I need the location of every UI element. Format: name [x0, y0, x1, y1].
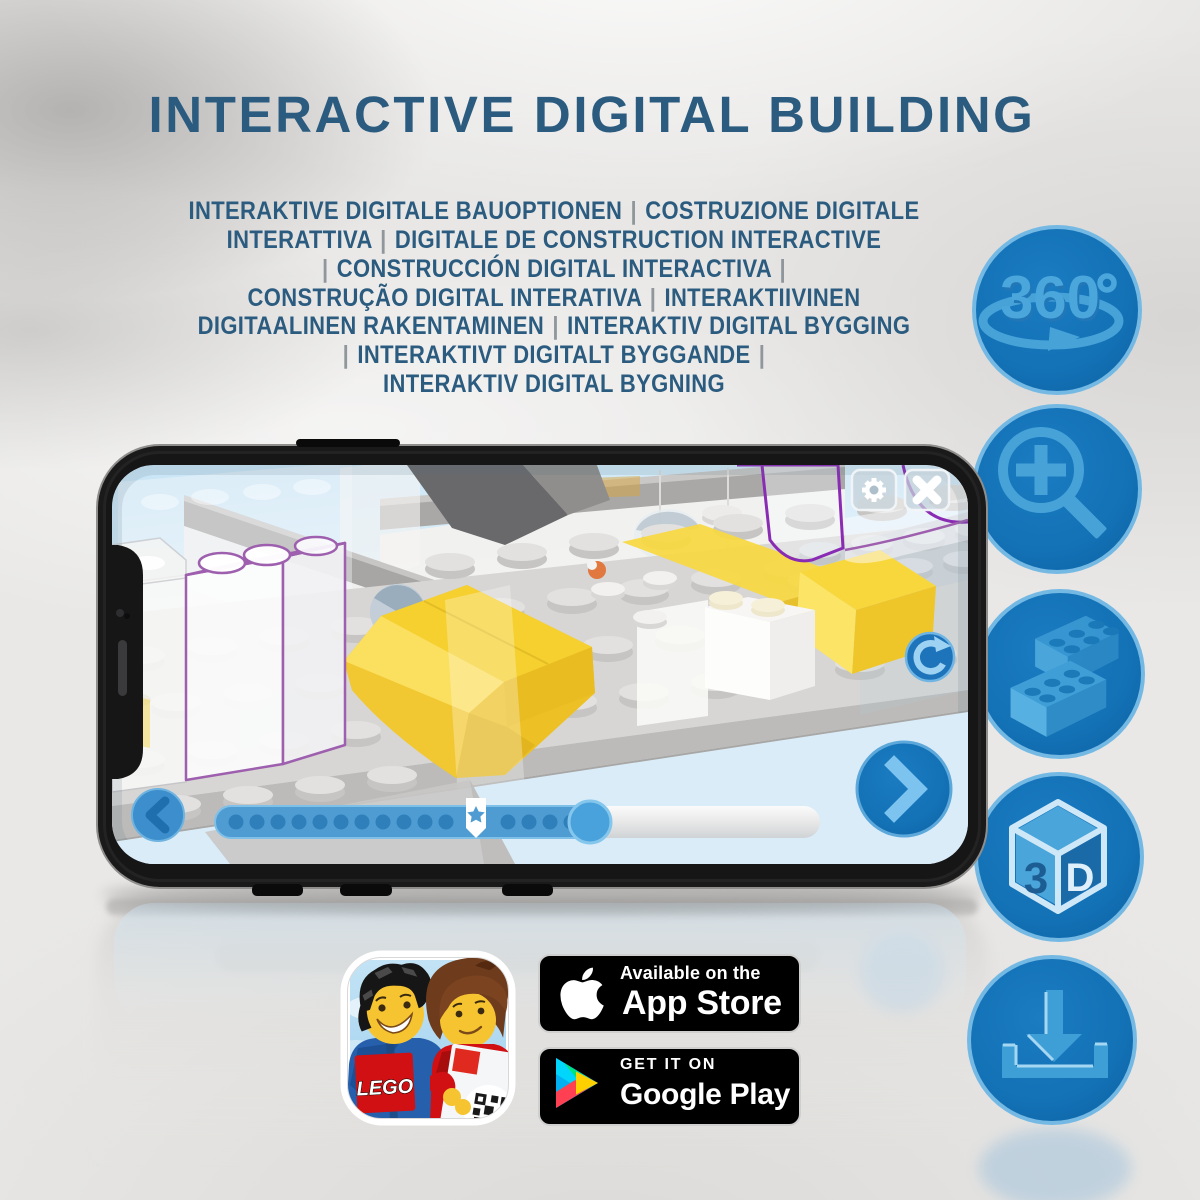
svg-text:3: 3	[1024, 854, 1048, 903]
svg-text:360: 360	[1000, 264, 1100, 331]
svg-text:LEGO: LEGO	[356, 1076, 414, 1101]
svg-text:D: D	[1066, 856, 1095, 900]
